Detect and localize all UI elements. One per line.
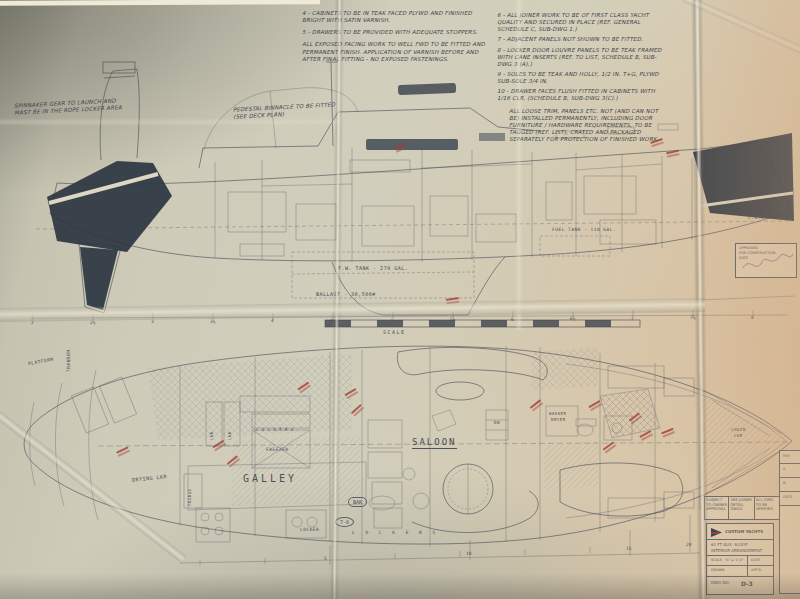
note-item: 6 - ALL JOINER WORK TO BE OF FIRST CLASS…: [497, 12, 669, 33]
note-footnote: ALL LOOSE TRIM, PANELS ETC. NOT (AND CAN…: [509, 108, 669, 144]
scale-bar: [325, 320, 640, 327]
legend-cell: ALL DIMS TO BE VERIFIED: [755, 497, 779, 519]
stove: [196, 508, 230, 542]
title-block-divider: [707, 555, 773, 556]
galley-label: GALLEY: [243, 473, 297, 484]
chain-locker-label-1: CHAIN: [731, 427, 746, 432]
plan-station-label: 5: [324, 556, 327, 561]
galley-sink: [286, 510, 326, 538]
station-label: 8: [751, 315, 754, 320]
scale-label: SCALE: [383, 329, 406, 335]
title-block-divider: [707, 565, 773, 566]
scale-key: SCALE: [711, 558, 722, 562]
station-label: 4: [271, 318, 274, 323]
transom-label: TRANSOM: [66, 350, 71, 372]
note-item: 10 - DRAWER FACES FLUSH FITTED IN CABINE…: [497, 88, 669, 102]
note-item: 4 - CABINETS TO BE IN TEAK FACED PLYWD A…: [302, 10, 490, 24]
revision-row: REV: [783, 454, 790, 458]
stamp-line: FOR CONSTRUCTION: [739, 251, 775, 255]
station-label: 6: [511, 317, 514, 322]
fridge-label: FRIDGE: [187, 489, 192, 506]
lockers-bottom-label: L O C K E R S: [352, 530, 439, 535]
station-label: 6½: [570, 316, 575, 321]
locker-label: LKR: [227, 431, 232, 440]
title-line1: 61 FT AUX. SLOOP: [711, 542, 748, 547]
locker-bottom-label: LOCKER: [300, 527, 319, 532]
saloon-label: SALOON: [412, 437, 457, 449]
notes-right-block: 6 - ALL JOINER WORK TO BE OF FIRST CLASS…: [497, 12, 669, 143]
revision-row: DATE: [783, 495, 792, 499]
title-block-divider: [707, 576, 773, 577]
note-item: 7 - ADJACENT PANELS NOT SHOWN TO BE FITT…: [497, 36, 669, 43]
station-label: 5½: [450, 317, 455, 322]
chain-locker-label-2: LKR: [734, 433, 743, 438]
rudder: [79, 243, 121, 313]
ballast-label: BALLAST - 30,500#: [316, 291, 376, 297]
blueprint-photo: 4 - CABINETS TO BE IN TEAK FACED PLYWD A…: [0, 0, 800, 599]
drawing-linework: [0, 0, 800, 599]
note-item: ALL EXPOSED FACING WORK TO WELL FWD TO B…: [302, 41, 490, 62]
saloon-table: [403, 464, 493, 514]
nav-bar-units: [368, 420, 402, 528]
title-line2: INTERIOR ARRANGEMENT: [711, 548, 762, 553]
revision-row: B: [783, 481, 785, 485]
plan-hull-outline: [24, 346, 792, 544]
stamp-line: DATE: [739, 256, 748, 260]
approval-stamp: APPROVED FOR CONSTRUCTION DATE: [735, 243, 797, 278]
dim-badge: 7-6: [335, 517, 354, 527]
dwg-number: D-3: [741, 580, 753, 587]
note-item: 8 - LOCKER DOOR LOUVRE PANELS TO BE TEAK…: [497, 47, 669, 68]
fuel-tank-label: FUEL TANK - 110 GAL.: [552, 227, 616, 232]
station-label: 2: [31, 320, 34, 325]
fw-tank-label: F.W. TANK - 270 GAL.: [338, 265, 408, 271]
builder-brand: CUSTOM YACHTS: [725, 529, 763, 534]
dwg-key: DWG NO.: [711, 580, 730, 585]
interior-joinery: [228, 160, 662, 256]
plan-view: [24, 296, 795, 566]
washer-label-2: DRYER: [551, 417, 566, 422]
title-block-divider: [707, 539, 773, 540]
drawn-key: DRAWN: [711, 568, 724, 572]
station-label: 5: [391, 318, 394, 323]
builder-logo-stripe: [711, 532, 719, 534]
legend-cell: SEE JOINER DETAIL DWGS: [729, 497, 754, 519]
station-label: 7½: [690, 315, 695, 320]
companionway-steps: [486, 410, 508, 440]
dn-label: DN: [494, 420, 500, 425]
date-key: DATE: [751, 558, 760, 562]
legend-table: SUBJECT TO OWNER APPROVAL SEE JOINER DET…: [704, 496, 780, 520]
revision-divider: [780, 505, 800, 506]
lockers-mid-label: L O C K E R S: [256, 427, 294, 432]
stern-dark-topsides: [47, 161, 172, 252]
title-block: CUSTOM YACHTS 61 FT AUX. SLOOP INTERIOR …: [706, 523, 774, 595]
station-label: 3: [151, 319, 154, 324]
legend-cell: SUBJECT TO OWNER APPROVAL: [705, 497, 729, 519]
stamp-line: APPROVED: [739, 246, 758, 250]
plan-station-label: 10: [466, 551, 471, 556]
freezer-label: FREEZER: [266, 447, 288, 452]
plan-station-label: 15: [626, 546, 631, 551]
note-item: 5 - DRAWERS TO BE PROVIDED WITH ADEQUATE…: [302, 29, 490, 36]
station-label: 2½: [90, 320, 95, 325]
washer-label-1: WASHER: [549, 411, 566, 416]
revision-divider: [780, 477, 800, 478]
appd-key: APP'D: [751, 568, 761, 572]
station-label: 3½: [210, 319, 215, 324]
interior-bulkheads: [215, 148, 692, 262]
locker-label: LKR: [209, 431, 214, 440]
revision-strip: REV A B DATE: [779, 450, 800, 594]
revision-divider: [780, 463, 800, 464]
bar-label: BAR: [348, 497, 367, 507]
scale-value: ¾" = 1'-0": [725, 558, 743, 562]
revision-row: A: [783, 467, 785, 471]
station-label: 7: [631, 316, 634, 321]
notes-left-block: 4 - CABINETS TO BE IN TEAK FACED PLYWD A…: [302, 10, 490, 63]
plan-station-label: 20: [686, 542, 691, 547]
note-item: 9 - SOLES TO BE TEAK AND HOLLY, 1/2 IN. …: [497, 71, 669, 85]
station-label: 4½: [330, 318, 335, 323]
bow-dark-topsides: [693, 133, 794, 221]
lwl-label: L.W.L.: [748, 215, 767, 220]
aft-sail-bins: [71, 377, 136, 433]
title-block-divider: [747, 555, 748, 576]
revision-divider: [780, 491, 800, 492]
elevation-view: [30, 62, 794, 327]
